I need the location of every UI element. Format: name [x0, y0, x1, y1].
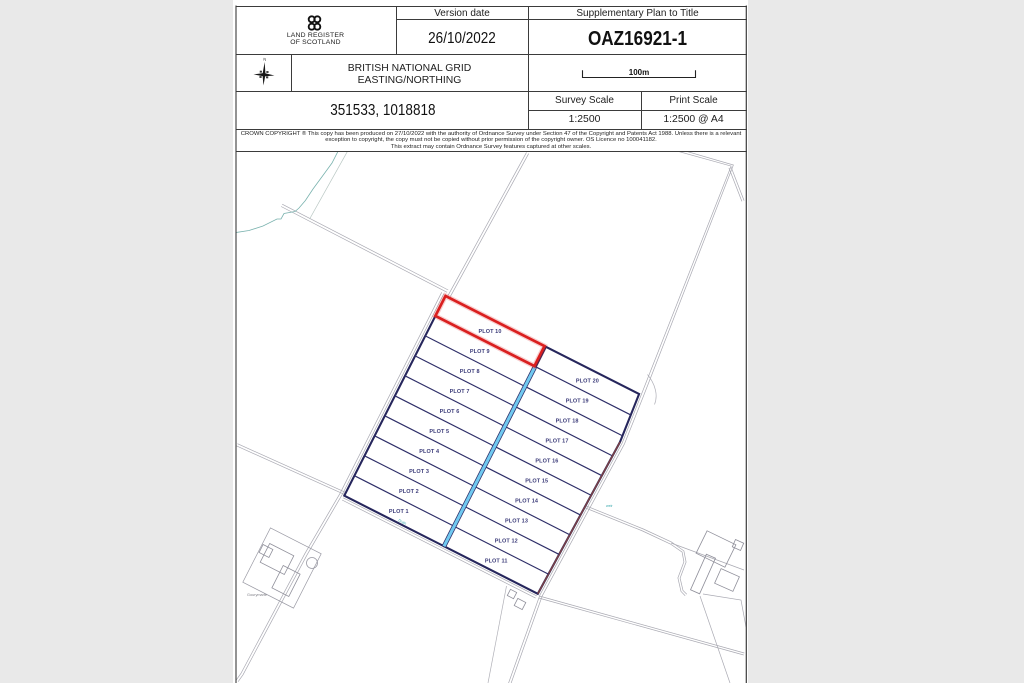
- svg-text:PLOT 14: PLOT 14: [515, 499, 539, 505]
- svg-text:PLOT 5: PLOT 5: [429, 429, 449, 435]
- svg-text:PLOT 20: PLOT 20: [576, 379, 599, 385]
- svg-text:Gourymarte: Gourymarte: [247, 593, 267, 597]
- svg-text:weir: weir: [606, 504, 613, 508]
- svg-text:PLOT 7: PLOT 7: [450, 389, 470, 395]
- svg-text:PLOT 16: PLOT 16: [535, 459, 558, 465]
- svg-text:PLOT 8: PLOT 8: [460, 369, 480, 375]
- svg-text:PLOT 13: PLOT 13: [505, 518, 528, 524]
- svg-text:PLOT 10: PLOT 10: [478, 329, 501, 335]
- svg-text:PLOT 18: PLOT 18: [556, 419, 579, 425]
- svg-text:PLOT 9: PLOT 9: [470, 349, 490, 355]
- svg-text:N: N: [263, 57, 266, 62]
- svg-text:PLOT 1: PLOT 1: [389, 509, 409, 515]
- svg-text:100m: 100m: [629, 68, 649, 77]
- svg-text:PLOT 4: PLOT 4: [419, 449, 440, 455]
- svg-text:PLOT 3: PLOT 3: [409, 469, 429, 475]
- svg-text:PLOT 12: PLOT 12: [495, 538, 518, 544]
- svg-text:PLOT 11: PLOT 11: [485, 558, 508, 564]
- svg-text:PLOT 17: PLOT 17: [545, 439, 568, 445]
- svg-text:PLOT 2: PLOT 2: [399, 489, 419, 495]
- svg-text:PLOT 15: PLOT 15: [525, 479, 548, 485]
- svg-text:PLOT 6: PLOT 6: [440, 409, 460, 415]
- svg-text:PLOT 19: PLOT 19: [566, 399, 589, 405]
